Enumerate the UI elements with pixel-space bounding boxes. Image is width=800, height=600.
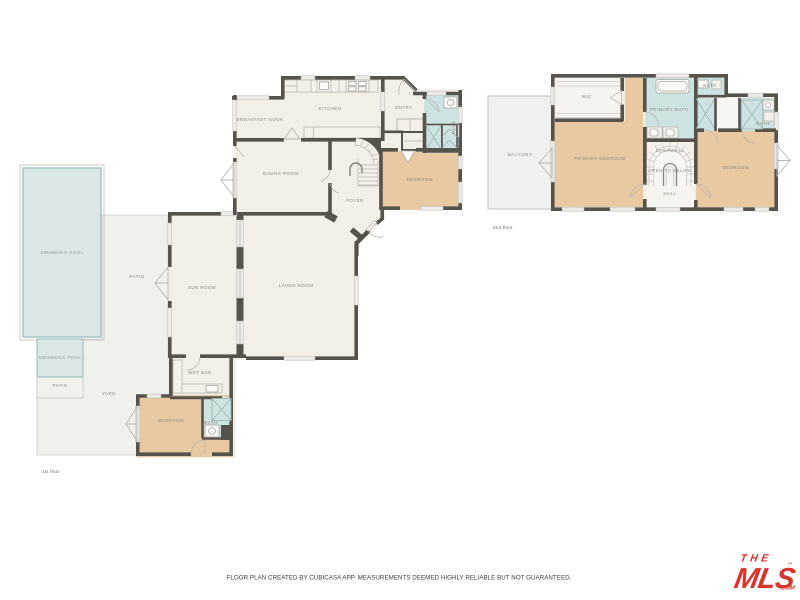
- svg-text:BATH: BATH: [451, 121, 456, 134]
- svg-text:™: ™: [787, 562, 793, 568]
- svg-text:SUN ROOM: SUN ROOM: [188, 285, 216, 290]
- svg-text:2nd floor: 2nd floor: [493, 225, 513, 230]
- svg-text:BREAKFAST NOOK: BREAKFAST NOOK: [237, 117, 284, 122]
- svg-text:OPEN TO BELOW: OPEN TO BELOW: [648, 168, 692, 173]
- svg-text:FOYER: FOYER: [346, 198, 364, 203]
- svg-text:WIC: WIC: [582, 94, 592, 99]
- svg-text:BALCONY: BALCONY: [508, 152, 532, 157]
- svg-text:BEDROOM: BEDROOM: [158, 418, 184, 423]
- svg-text:.COM: .COM: [779, 586, 797, 592]
- svg-text:PATIO: PATIO: [52, 383, 67, 388]
- svg-text:BATH: BATH: [204, 420, 217, 425]
- svg-text:FLOOR PLAN CREATED BY CUBICASA: FLOOR PLAN CREATED BY CUBICASA APP. MEAS…: [227, 575, 572, 582]
- svg-text:HALL: HALL: [664, 191, 677, 196]
- svg-text:SWIMMING POOL: SWIMMING POOL: [40, 250, 83, 255]
- svg-text:DINING ROOM: DINING ROOM: [263, 171, 299, 176]
- svg-text:SWIMMING POOL: SWIMMING POOL: [38, 355, 81, 360]
- svg-text:BEDROOM: BEDROOM: [407, 177, 433, 182]
- svg-text:ENTRY: ENTRY: [395, 105, 412, 110]
- svg-text:PATIO: PATIO: [129, 274, 144, 279]
- svg-text:1st floor: 1st floor: [42, 469, 60, 474]
- svg-text:YARD: YARD: [102, 391, 116, 396]
- svg-text:BATH: BATH: [756, 121, 769, 126]
- svg-text:BATH: BATH: [703, 83, 716, 88]
- svg-text:KITCHEN: KITCHEN: [319, 106, 342, 111]
- svg-text:PRIMARY BATH: PRIMARY BATH: [650, 107, 688, 112]
- svg-text:BEDROOM: BEDROOM: [723, 165, 749, 170]
- svg-text:LIVING ROOM: LIVING ROOM: [279, 283, 314, 288]
- svg-text:WET BAR: WET BAR: [188, 370, 211, 375]
- svg-text:PRIMARY BEDROOM: PRIMARY BEDROOM: [574, 156, 625, 161]
- svg-text:STAIRWELL: STAIRWELL: [656, 148, 685, 153]
